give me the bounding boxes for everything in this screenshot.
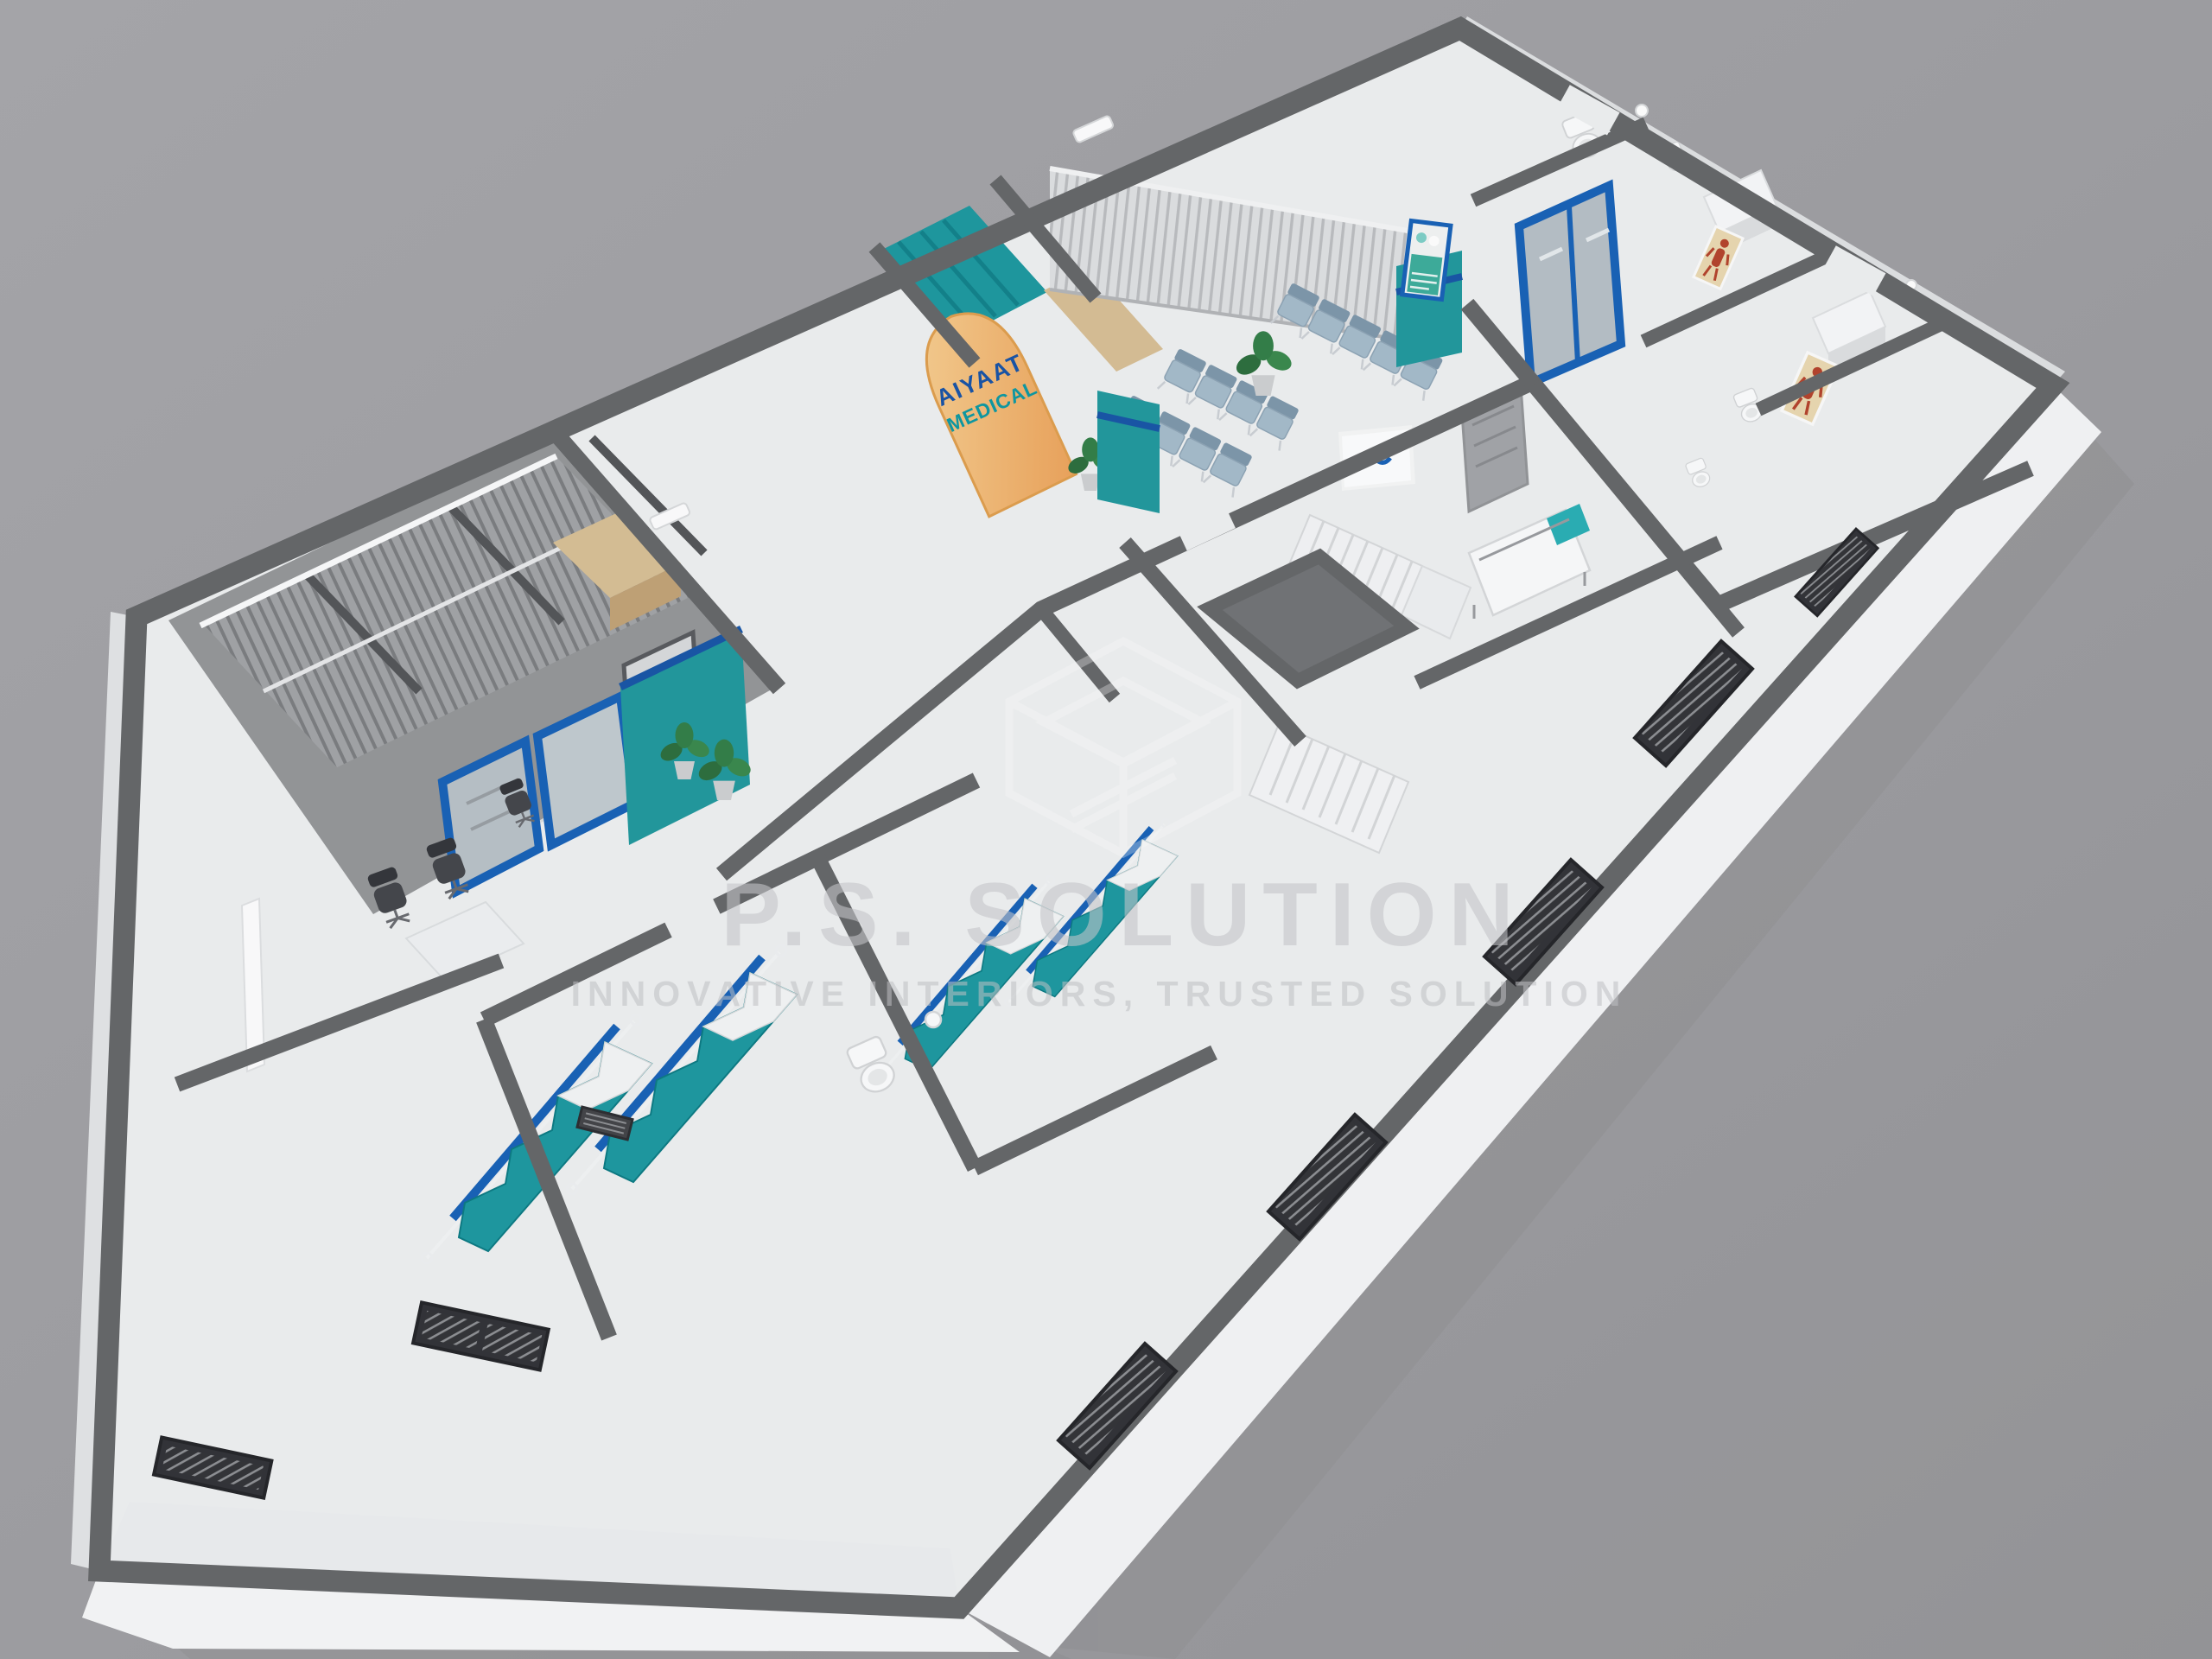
render-viewport: AIYAAT MEDICAL [0, 0, 2212, 1659]
floorplan-render: AIYAAT MEDICAL [0, 0, 2212, 1659]
vignette [0, 0, 2212, 1659]
